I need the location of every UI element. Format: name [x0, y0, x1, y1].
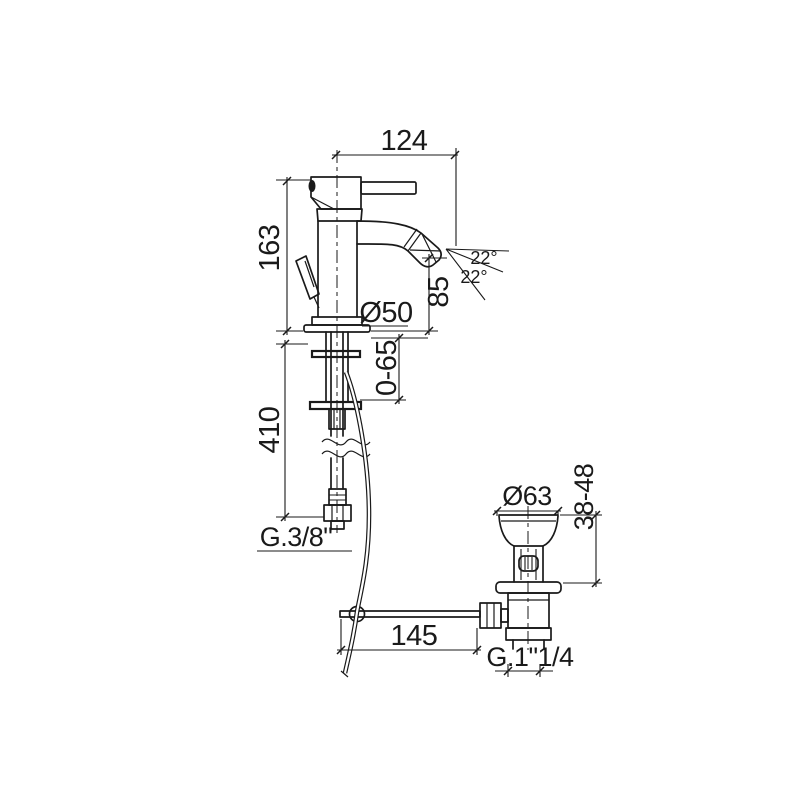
label-rod-length: 145 [391, 620, 438, 652]
label-deck-range: 0-65 [371, 340, 403, 396]
label-height: 163 [254, 225, 286, 272]
bidet-mixer-drawing: 124 163 85 22° 22° Ø50 0-65 410 G.3/8" Ø… [0, 0, 800, 800]
label-clamp-range: 38-48 [569, 464, 599, 531]
rod-hex-nut [480, 603, 508, 628]
label-waste-thread: G.1"1/4 [486, 642, 574, 672]
label-waste-diameter: Ø63 [502, 481, 552, 511]
mounting-washer [312, 351, 360, 357]
label-supply-thread: G.3/8" [260, 522, 333, 552]
head-collar [317, 209, 362, 221]
technical-drawing-canvas: 124 163 85 22° 22° Ø50 0-65 410 G.3/8" Ø… [0, 0, 800, 800]
horizontal-linkage-rod [340, 611, 480, 617]
label-angle-up: 22° [470, 248, 497, 268]
label-hose-length: 410 [254, 407, 286, 454]
dim-124-spout-reach [332, 148, 459, 246]
label-base-diameter: Ø50 [359, 297, 412, 329]
handle-pin [309, 180, 316, 192]
label-spout-height: 85 [423, 276, 455, 307]
lever-handle [361, 182, 416, 194]
pop-up-lever [296, 256, 319, 308]
faucet-cartridge-head [309, 177, 362, 209]
label-spout-reach: 124 [381, 125, 428, 157]
label-angle-down: 22° [460, 267, 487, 287]
